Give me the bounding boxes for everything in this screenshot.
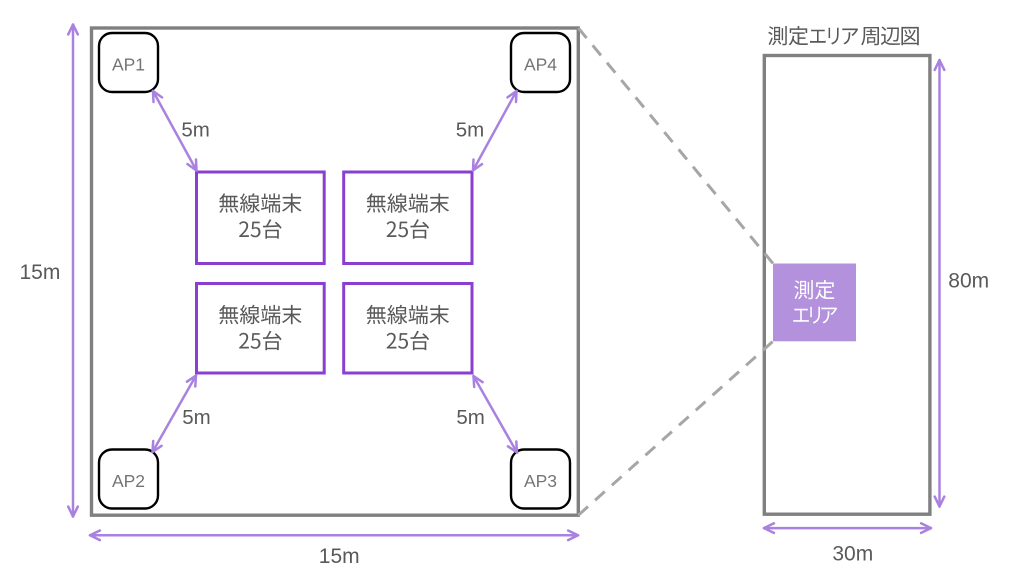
svg-text:AP3: AP3 xyxy=(524,471,557,491)
svg-text:80m: 80m xyxy=(948,270,989,293)
svg-text:AP1: AP1 xyxy=(112,54,145,74)
svg-text:5m: 5m xyxy=(182,406,210,429)
svg-text:5m: 5m xyxy=(456,119,484,142)
svg-text:AP4: AP4 xyxy=(524,54,557,74)
svg-text:5m: 5m xyxy=(456,406,484,429)
svg-text:15m: 15m xyxy=(19,261,60,284)
svg-text:15m: 15m xyxy=(319,545,360,568)
svg-text:5m: 5m xyxy=(181,119,209,142)
svg-text:30m: 30m xyxy=(832,543,873,566)
svg-text:AP2: AP2 xyxy=(112,471,145,491)
